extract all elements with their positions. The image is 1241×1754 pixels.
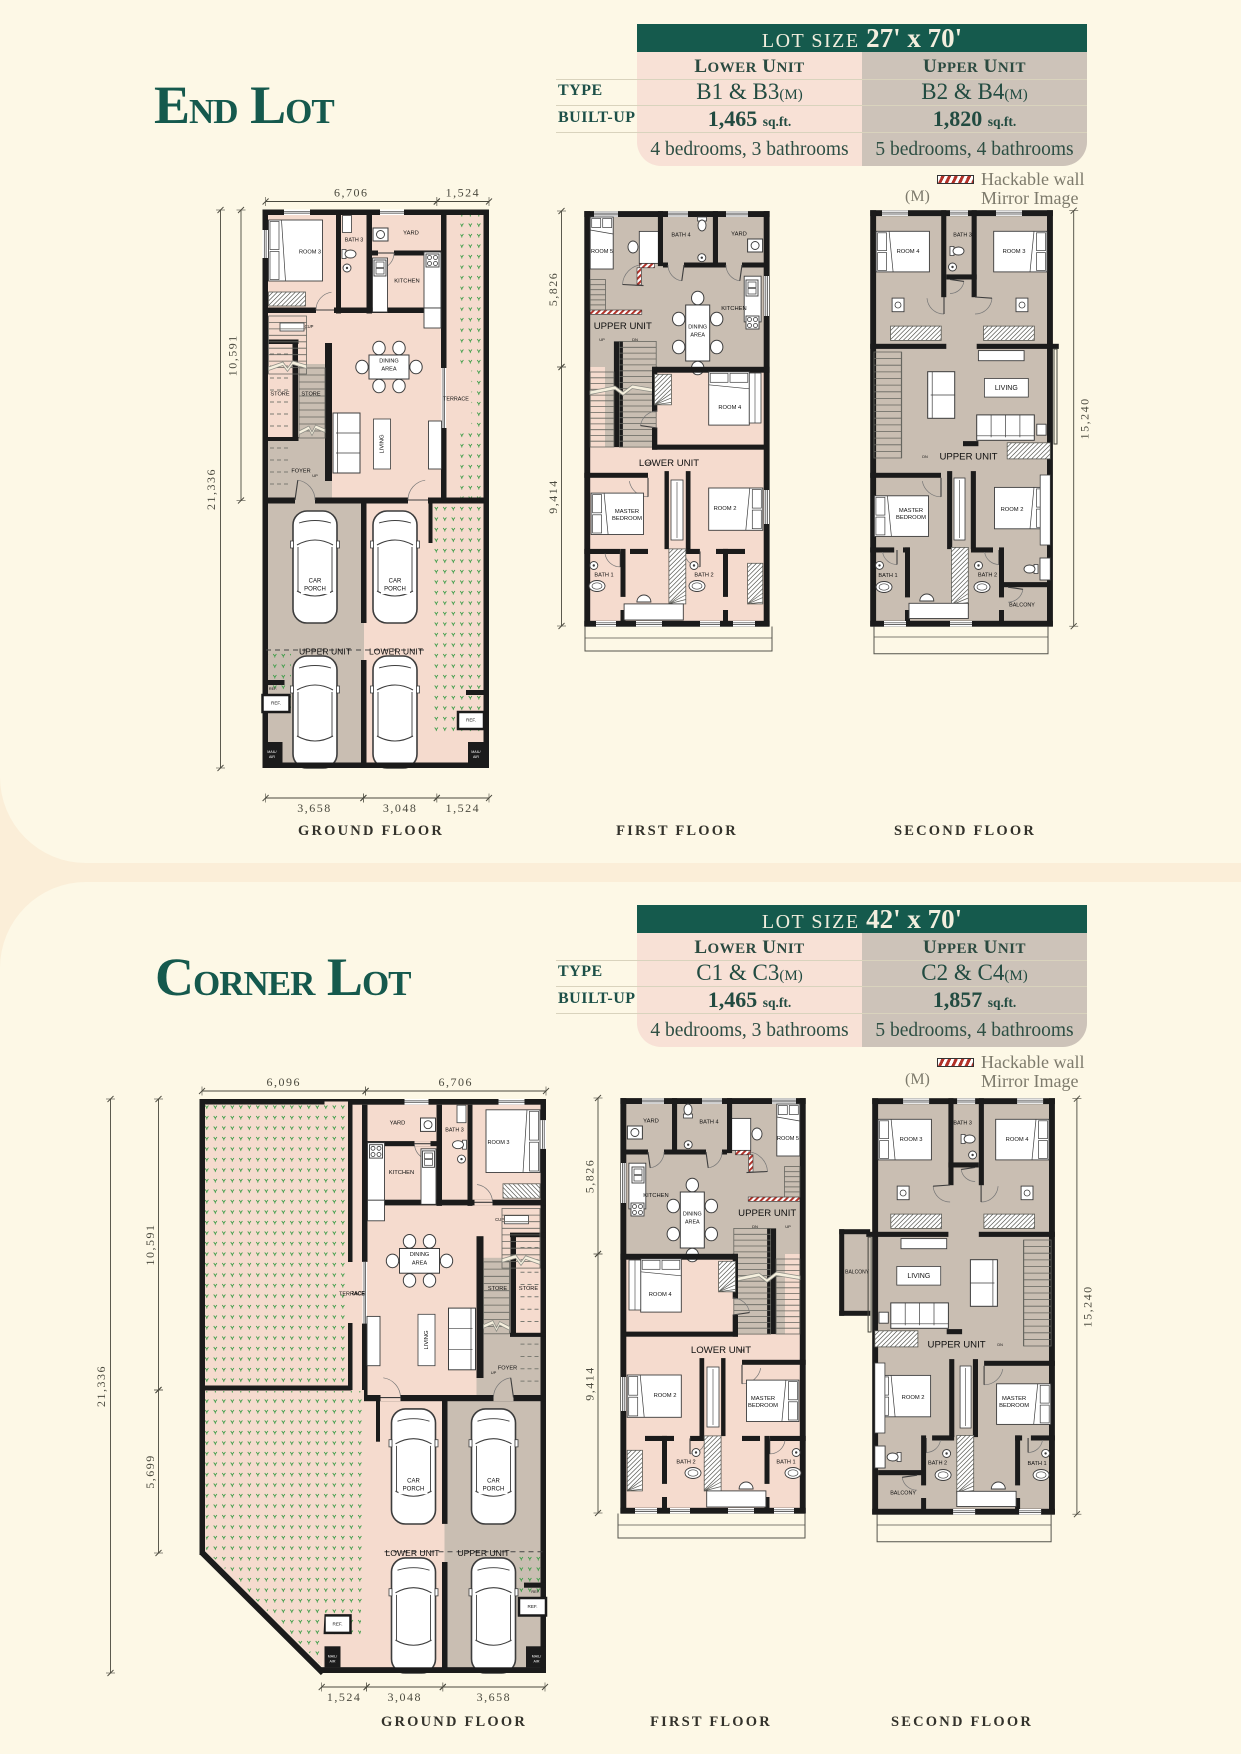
svg-text:CAR: CAR	[309, 579, 322, 585]
svg-text:DINING: DINING	[410, 1252, 430, 1258]
svg-text:BEDROOM: BEDROOM	[999, 1403, 1029, 1409]
svg-text:6,096: 6,096	[267, 1075, 302, 1089]
svg-text:DN: DN	[646, 462, 652, 466]
svg-text:CAR: CAR	[389, 579, 402, 585]
svg-text:MAIL/: MAIL/	[532, 1655, 541, 1659]
svg-text:TERRACE: TERRACE	[443, 396, 469, 402]
svg-text:ROOM 5: ROOM 5	[777, 1136, 799, 1142]
svg-text:STORE: STORE	[488, 1286, 507, 1292]
svg-text:AIR: AIR	[330, 1660, 336, 1664]
svg-text:5,826: 5,826	[582, 1159, 596, 1194]
svg-text:5,699: 5,699	[143, 1454, 157, 1489]
svg-text:PORCH: PORCH	[483, 1487, 505, 1493]
svg-text:21,336: 21,336	[204, 468, 218, 510]
svg-text:MAIL/: MAIL/	[471, 750, 480, 754]
svg-text:BATH 3: BATH 3	[345, 237, 363, 243]
svg-text:STORE: STORE	[301, 391, 320, 397]
svg-text:BATH 4: BATH 4	[699, 1119, 718, 1125]
svg-text:ROOM 5: ROOM 5	[591, 249, 613, 255]
svg-text:STORE: STORE	[519, 1286, 538, 1292]
svg-text:LIVING: LIVING	[907, 1273, 930, 1280]
svg-text:AIR: AIR	[473, 755, 479, 759]
svg-text:BATH 2: BATH 2	[978, 573, 997, 579]
svg-text:ROOM 2: ROOM 2	[902, 1395, 925, 1401]
svg-text:UP: UP	[599, 337, 605, 342]
svg-text:BATH 1: BATH 1	[878, 573, 897, 579]
svg-text:UP: UP	[785, 1224, 791, 1229]
svg-text:9,414: 9,414	[582, 1366, 596, 1401]
svg-text:TERRACE: TERRACE	[339, 1291, 365, 1297]
svg-text:MAIL/: MAIL/	[328, 1655, 337, 1659]
svg-text:REF.: REF.	[531, 1590, 539, 1594]
svg-text:PORCH: PORCH	[403, 1487, 425, 1493]
svg-text:3,658: 3,658	[477, 1690, 512, 1704]
svg-text:DINING: DINING	[379, 358, 399, 364]
svg-text:UPPER UNIT: UPPER UNIT	[928, 1340, 986, 1351]
svg-text:ROOM 3: ROOM 3	[1003, 249, 1026, 255]
svg-text:6,706: 6,706	[439, 1075, 474, 1089]
svg-text:BATH 1: BATH 1	[776, 1460, 795, 1466]
svg-text:AREA: AREA	[381, 366, 397, 372]
svg-text:UPPER UNIT: UPPER UNIT	[738, 1208, 796, 1219]
svg-text:CUP: CUP	[495, 1217, 504, 1222]
svg-text:ROOM 4: ROOM 4	[718, 405, 742, 411]
svg-text:1,524: 1,524	[446, 801, 481, 815]
svg-text:BALCONY: BALCONY	[890, 1490, 916, 1496]
svg-text:BATH 2: BATH 2	[694, 573, 713, 579]
svg-text:ROOM 2: ROOM 2	[1001, 507, 1024, 513]
svg-text:6,706: 6,706	[334, 185, 369, 199]
svg-text:BATH 1: BATH 1	[594, 573, 613, 579]
svg-text:9,414: 9,414	[546, 479, 560, 514]
svg-text:PORCH: PORCH	[304, 587, 326, 593]
svg-text:DINING: DINING	[688, 324, 707, 330]
svg-text:MASTER: MASTER	[751, 1396, 775, 1402]
svg-text:UPPER UNIT: UPPER UNIT	[299, 646, 352, 656]
svg-text:YARD: YARD	[390, 1121, 406, 1127]
svg-text:3,048: 3,048	[387, 1690, 422, 1704]
svg-text:LOWER UNIT: LOWER UNIT	[386, 1548, 441, 1558]
svg-text:AREA: AREA	[685, 1219, 700, 1225]
svg-text:BATH 3: BATH 3	[953, 1121, 971, 1127]
svg-text:FOYER: FOYER	[498, 1365, 517, 1371]
svg-text:DN: DN	[738, 1349, 744, 1353]
svg-text:UP: UP	[312, 473, 318, 478]
svg-text:YARD: YARD	[643, 1119, 659, 1125]
svg-text:MASTER: MASTER	[615, 509, 639, 515]
svg-text:CAR: CAR	[487, 1478, 500, 1484]
svg-text:KITCHEN: KITCHEN	[721, 306, 746, 312]
svg-text:CUP: CUP	[305, 324, 314, 329]
svg-text:3,048: 3,048	[383, 801, 418, 815]
svg-text:BATH 3: BATH 3	[445, 1128, 463, 1134]
svg-text:ROOM 4: ROOM 4	[649, 1292, 673, 1298]
svg-text:UPPER UNIT: UPPER UNIT	[594, 321, 652, 332]
svg-text:BATH 2: BATH 2	[928, 1461, 947, 1467]
svg-text:AIR: AIR	[269, 755, 275, 759]
svg-text:BALCONY: BALCONY	[845, 1269, 870, 1275]
svg-text:ROOM 4: ROOM 4	[1006, 1137, 1030, 1143]
svg-text:REF.: REF.	[333, 1621, 343, 1626]
svg-text:LIVING: LIVING	[995, 385, 1018, 392]
svg-text:BEDROOM: BEDROOM	[748, 1403, 778, 1409]
svg-text:LIVING: LIVING	[380, 434, 386, 453]
svg-text:REF.: REF.	[528, 1604, 538, 1609]
svg-text:15,240: 15,240	[1081, 1285, 1095, 1327]
svg-text:LOWER UNIT: LOWER UNIT	[369, 646, 424, 656]
svg-text:10,591: 10,591	[226, 334, 240, 376]
svg-text:KITCHEN: KITCHEN	[643, 1193, 668, 1199]
svg-text:KITCHEN: KITCHEN	[394, 279, 419, 285]
svg-text:10,591: 10,591	[143, 1224, 157, 1266]
svg-text:BEDROOM: BEDROOM	[612, 516, 642, 522]
svg-text:ROOM 3: ROOM 3	[487, 1140, 509, 1146]
svg-text:UPPER UNIT: UPPER UNIT	[939, 452, 997, 463]
svg-text:3,658: 3,658	[297, 801, 332, 815]
svg-text:ROOM 3: ROOM 3	[299, 249, 321, 255]
svg-text:ROOM 4: ROOM 4	[897, 249, 921, 255]
svg-text:21,336: 21,336	[94, 1365, 108, 1407]
svg-text:REF.: REF.	[269, 687, 277, 691]
svg-text:PORCH: PORCH	[384, 587, 406, 593]
svg-text:1,524: 1,524	[446, 185, 481, 199]
svg-text:BEDROOM: BEDROOM	[896, 515, 926, 521]
svg-text:BALCONY: BALCONY	[1009, 602, 1035, 608]
svg-text:ROOM 2: ROOM 2	[714, 506, 737, 512]
svg-text:MASTER: MASTER	[899, 508, 923, 514]
svg-text:BATH 2: BATH 2	[676, 1460, 695, 1466]
svg-text:AIR: AIR	[534, 1660, 540, 1664]
svg-text:YARD: YARD	[403, 231, 419, 237]
svg-text:STORE: STORE	[270, 391, 289, 397]
svg-text:1,524: 1,524	[327, 1690, 362, 1704]
svg-text:DINING: DINING	[683, 1211, 702, 1217]
svg-text:15,240: 15,240	[1077, 397, 1091, 439]
svg-text:UP: UP	[491, 1370, 497, 1375]
svg-text:UPPER UNIT: UPPER UNIT	[457, 1548, 510, 1558]
svg-text:BATH 3: BATH 3	[953, 233, 971, 239]
svg-text:DN: DN	[922, 455, 928, 459]
svg-text:LIVING: LIVING	[424, 1330, 430, 1349]
svg-text:FOYER: FOYER	[291, 468, 310, 474]
svg-text:5,826: 5,826	[546, 272, 560, 307]
svg-text:MAIL/: MAIL/	[267, 750, 276, 754]
svg-text:CAR: CAR	[407, 1478, 420, 1484]
svg-text:YARD: YARD	[731, 232, 747, 238]
svg-text:BATH 1: BATH 1	[1028, 1461, 1047, 1467]
svg-text:ROOM 3: ROOM 3	[900, 1137, 923, 1143]
svg-text:MASTER: MASTER	[1002, 1396, 1026, 1402]
svg-text:REF.: REF.	[466, 718, 476, 723]
svg-text:BATH 4: BATH 4	[671, 232, 690, 238]
svg-text:REF.: REF.	[271, 701, 281, 706]
svg-text:ROOM 2: ROOM 2	[654, 1393, 677, 1399]
svg-text:AREA: AREA	[690, 332, 705, 338]
svg-text:DN: DN	[997, 1343, 1003, 1347]
svg-text:KITCHEN: KITCHEN	[389, 1170, 414, 1176]
svg-text:AREA: AREA	[412, 1260, 428, 1266]
